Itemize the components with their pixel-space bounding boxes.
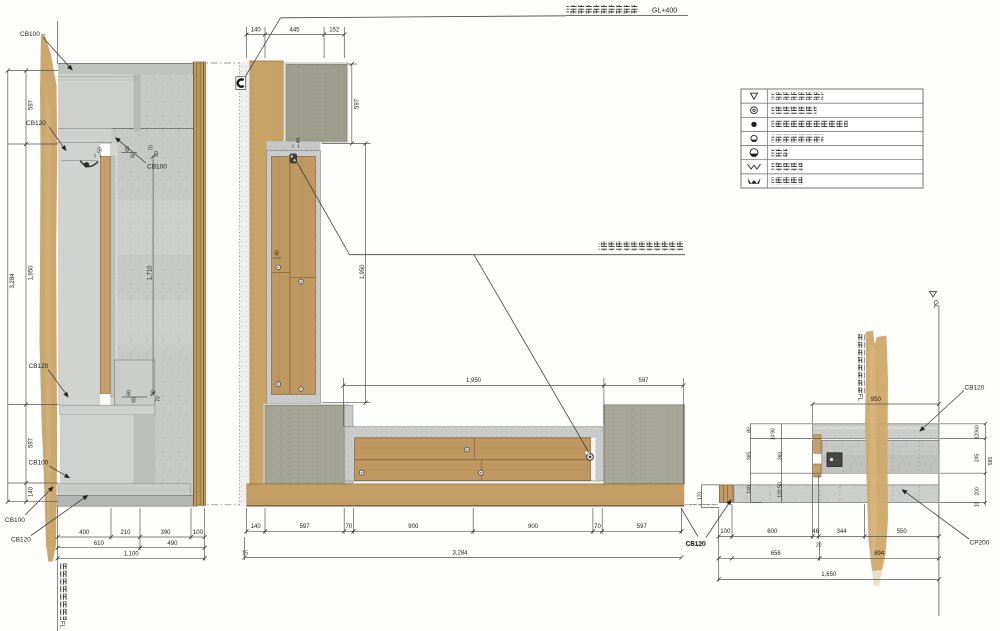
svg-text:900: 900	[528, 524, 539, 530]
svg-text:CB120: CB120	[26, 120, 46, 127]
svg-text:597: 597	[29, 437, 35, 448]
svg-text:70: 70	[156, 396, 162, 402]
svg-text:40: 40	[275, 250, 281, 256]
svg-text:CB120: CB120	[965, 385, 985, 392]
svg-text:FL: FL	[59, 621, 65, 629]
svg-text:CB120: CB120	[29, 363, 49, 370]
svg-text:656: 656	[771, 551, 782, 557]
svg-text:585: 585	[988, 457, 994, 466]
svg-text:597: 597	[29, 99, 35, 110]
svg-text:950: 950	[871, 397, 882, 403]
svg-text:CB100: CB100	[147, 164, 167, 171]
svg-text:445: 445	[289, 28, 300, 34]
svg-text:1,650: 1,650	[821, 572, 837, 578]
svg-text:3,284: 3,284	[452, 551, 468, 557]
svg-text:CB120: CB120	[686, 541, 706, 548]
svg-text:597: 597	[355, 98, 361, 109]
svg-text:140: 140	[29, 486, 35, 497]
svg-text:60: 60	[132, 397, 138, 403]
svg-text:46: 46	[812, 529, 819, 535]
svg-text:CB100: CB100	[29, 460, 49, 467]
svg-text:600: 600	[767, 529, 778, 535]
svg-text:CB100: CB100	[5, 517, 25, 524]
svg-text:50: 50	[151, 390, 157, 396]
svg-text:FL: FL	[857, 394, 863, 402]
svg-text:3,284: 3,284	[10, 273, 16, 289]
svg-text:200: 200	[975, 487, 981, 496]
svg-text:344: 344	[837, 529, 848, 535]
svg-text:1,100: 1,100	[124, 552, 140, 558]
svg-text:15: 15	[242, 551, 248, 557]
svg-text:60: 60	[127, 390, 133, 396]
svg-text:120: 120	[778, 489, 784, 498]
svg-text:597: 597	[637, 524, 648, 530]
svg-text:140: 140	[251, 524, 262, 530]
svg-text:GL: GL	[932, 300, 939, 309]
svg-text:60: 60	[131, 152, 137, 158]
svg-text:70: 70	[594, 524, 601, 530]
svg-text:GL+400: GL+400	[652, 8, 677, 15]
svg-text:245: 245	[975, 454, 981, 463]
svg-text:10: 10	[975, 502, 981, 508]
svg-text:140: 140	[251, 28, 262, 34]
svg-text:90: 90	[771, 428, 777, 434]
svg-text:597: 597	[638, 378, 649, 384]
svg-text:60: 60	[975, 425, 981, 431]
svg-text:20: 20	[816, 543, 822, 549]
svg-text:1,950: 1,950	[29, 265, 35, 281]
svg-text:170: 170	[698, 492, 704, 501]
svg-text:490: 490	[167, 541, 178, 547]
svg-text:100: 100	[720, 529, 731, 535]
svg-text:120: 120	[975, 431, 981, 440]
svg-text:152: 152	[329, 28, 340, 34]
svg-text:550: 550	[897, 529, 908, 535]
svg-text:140: 140	[747, 485, 753, 494]
svg-text:50: 50	[98, 147, 104, 153]
svg-text:50: 50	[154, 151, 160, 157]
svg-text:400: 400	[79, 530, 90, 536]
svg-text:610: 610	[94, 541, 105, 547]
svg-text:60: 60	[125, 146, 131, 152]
svg-text:894: 894	[874, 551, 885, 557]
svg-text:1,950: 1,950	[466, 378, 482, 384]
svg-text:1,950: 1,950	[360, 264, 366, 280]
svg-text:390: 390	[160, 530, 171, 536]
svg-text:900: 900	[408, 524, 419, 530]
svg-text:365: 365	[747, 452, 753, 461]
svg-text:40: 40	[296, 138, 302, 144]
svg-text:50: 50	[778, 482, 784, 488]
svg-text:80: 80	[747, 427, 753, 433]
svg-text:70: 70	[149, 145, 155, 151]
svg-text:360: 360	[778, 452, 784, 461]
svg-text:10: 10	[771, 435, 777, 441]
svg-text:CP200: CP200	[970, 540, 990, 547]
svg-text:597: 597	[300, 524, 311, 530]
svg-text:70: 70	[345, 524, 352, 530]
svg-text:100: 100	[193, 530, 204, 536]
svg-text:CB120: CB120	[11, 537, 31, 544]
svg-text:CB100: CB100	[20, 31, 40, 38]
svg-text:210: 210	[120, 530, 131, 536]
svg-text:1,710: 1,710	[148, 265, 154, 281]
